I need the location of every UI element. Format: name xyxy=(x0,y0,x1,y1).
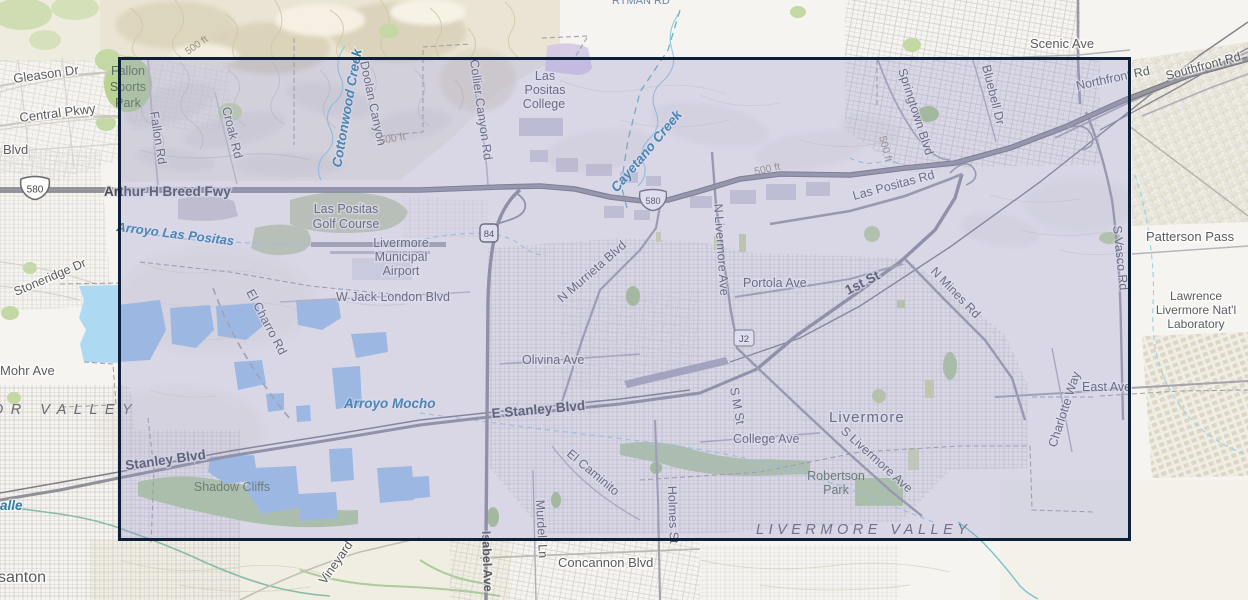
svg-text:RTMAN RD: RTMAN RD xyxy=(612,0,670,7)
svg-text:Laboratory: Laboratory xyxy=(1167,317,1224,331)
svg-text:580: 580 xyxy=(27,185,44,196)
svg-text:Concannon Blvd: Concannon Blvd xyxy=(558,555,653,570)
svg-text:Lawrence: Lawrence xyxy=(1170,289,1222,303)
svg-text:Mohr Ave: Mohr Ave xyxy=(0,363,55,378)
svg-text:Blvd: Blvd xyxy=(3,142,28,157)
svg-text:santon: santon xyxy=(0,569,46,586)
svg-text:Patterson Pass: Patterson Pass xyxy=(1146,229,1235,244)
svg-text:Scenic Ave: Scenic Ave xyxy=(1030,36,1094,51)
svg-text:Livermore Nat'l: Livermore Nat'l xyxy=(1156,303,1236,317)
svg-text:alle: alle xyxy=(0,498,23,513)
